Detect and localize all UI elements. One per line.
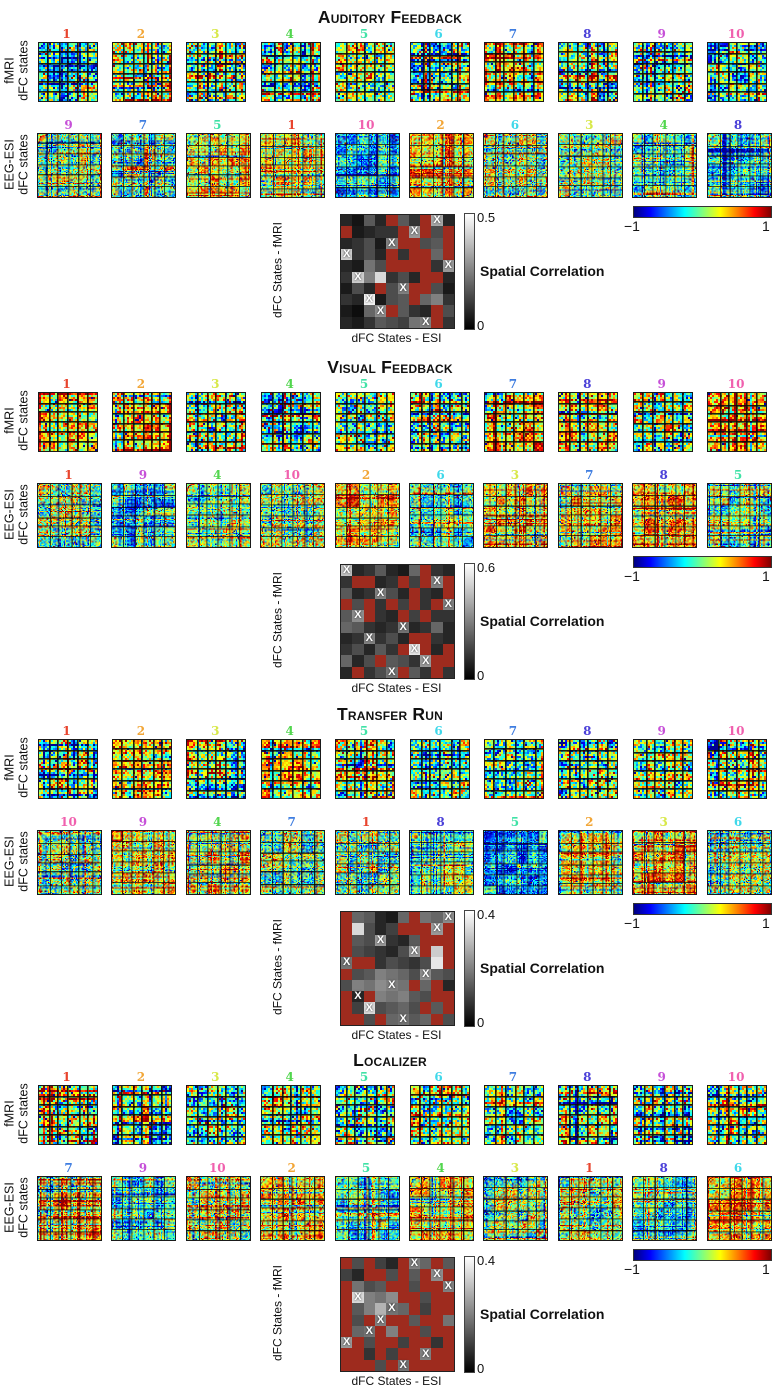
match-x-mark: X [366, 1326, 373, 1337]
correlation-cell [420, 565, 431, 576]
eeg-dfc-state-matrix [260, 1176, 325, 1241]
correlation-cell [431, 1360, 442, 1371]
fmri-dfc-state-matrix [38, 392, 98, 452]
correlation-cell [431, 655, 442, 666]
state-number-fmri: 7 [493, 1071, 533, 1083]
correlation-cell [420, 935, 431, 946]
correlation-cell [443, 1014, 454, 1025]
correlation-cell: X [375, 1315, 386, 1326]
fmri-dfc-state-matrix [633, 1085, 693, 1145]
correlation-cell [352, 588, 363, 599]
correlation-cell [409, 912, 420, 923]
correlation-cell [420, 980, 431, 991]
correlation-cell [386, 294, 397, 305]
match-x-mark: X [411, 226, 418, 237]
correlation-cell [375, 1002, 386, 1013]
correlation-cell [420, 272, 431, 283]
correlation-cell [398, 249, 409, 260]
fmri-dfc-state-matrix [261, 392, 321, 452]
correlation-cell [375, 1269, 386, 1280]
dfc-states-figure: Auditory Feedback12345678910fMRIdFC stat… [0, 0, 779, 1399]
correlation-cell [431, 1002, 442, 1013]
state-number-fmri: 1 [47, 1071, 87, 1083]
correlation-cell [364, 957, 375, 968]
jet-colorbar [633, 206, 772, 218]
correlation-cell [341, 633, 352, 644]
correlation-cell: X [364, 1326, 375, 1337]
state-number-fmri: 4 [270, 378, 310, 390]
correlation-cell [443, 980, 454, 991]
correlation-cell [409, 610, 420, 621]
state-number-eeg: 9 [123, 1162, 163, 1174]
correlation-ylabel: dFC States - fMRI [270, 1256, 284, 1369]
correlation-cell [443, 1337, 454, 1348]
fmri-dfc-state-matrix [186, 1085, 246, 1145]
state-number-fmri: 9 [642, 725, 682, 737]
correlation-cell [341, 1281, 352, 1292]
correlation-cell [375, 923, 386, 934]
correlation-cell [341, 1002, 352, 1013]
fmri-dfc-state-matrix [707, 1085, 767, 1145]
state-number-fmri: 3 [195, 28, 235, 40]
spatial-correlation-colorbar [464, 213, 475, 330]
correlation-cell [409, 272, 420, 283]
correlation-cell [409, 1281, 420, 1292]
correlation-cell [386, 599, 397, 610]
fmri-dfc-state-matrix [484, 1085, 544, 1145]
correlation-cell [364, 1303, 375, 1314]
correlation-cell [409, 1337, 420, 1348]
spatial-correlation-matrix: XXXXXXXXXX [340, 1257, 455, 1372]
correlation-cell [443, 1292, 454, 1303]
correlation-cell: X [375, 588, 386, 599]
correlation-cell [364, 238, 375, 249]
row-label-line2: dFC states [17, 1159, 31, 1255]
correlation-cell [352, 946, 363, 957]
correlation-cell [431, 610, 442, 621]
correlation-cell [420, 644, 431, 655]
spatial-correlation-colorbar [464, 1256, 475, 1373]
eeg-dfc-state-matrix [111, 1176, 176, 1241]
match-x-mark: X [343, 1337, 350, 1348]
correlation-cell [431, 1292, 442, 1303]
fmri-dfc-state-matrix [112, 42, 172, 102]
fmri-row-label: fMRIdFC states [4, 1066, 31, 1162]
correlation-cell [352, 622, 363, 633]
eeg-dfc-state-matrix [409, 483, 474, 548]
state-number-fmri: 10 [716, 378, 756, 390]
fmri-dfc-state-matrix [38, 42, 98, 102]
correlation-cell [341, 588, 352, 599]
correlation-cell [375, 283, 386, 294]
fmri-dfc-state-matrix [261, 42, 321, 102]
correlation-cell [352, 238, 363, 249]
correlation-cell [398, 1292, 409, 1303]
correlation-cell [352, 1315, 363, 1326]
correlation-cell [386, 655, 397, 666]
state-number-fmri: 6 [419, 28, 459, 40]
match-x-mark: X [366, 633, 373, 644]
state-number-fmri: 5 [344, 1071, 384, 1083]
correlation-cell [431, 991, 442, 1002]
correlation-cell [364, 1337, 375, 1348]
eeg-dfc-state-matrix [632, 1176, 697, 1241]
state-number-fmri: 9 [642, 28, 682, 40]
state-number-eeg: 6 [718, 816, 758, 828]
correlation-cell [341, 980, 352, 991]
correlation-cell [409, 599, 420, 610]
correlation-cell [364, 317, 375, 328]
correlation-cell [352, 655, 363, 666]
correlation-cell [431, 1315, 442, 1326]
correlation-cell [375, 1303, 386, 1314]
match-x-mark: X [445, 599, 452, 610]
correlation-cell [341, 610, 352, 621]
state-number-eeg: 3 [569, 119, 609, 131]
row-label-line1: fMRI [4, 720, 18, 816]
correlation-cell: X [375, 935, 386, 946]
correlation-cell: X [352, 610, 363, 621]
state-number-fmri: 9 [642, 1071, 682, 1083]
correlation-colorbar-max-label: 0.4 [477, 907, 495, 922]
match-x-mark: X [343, 957, 350, 968]
state-number-fmri: 4 [270, 28, 310, 40]
correlation-cell [409, 923, 420, 934]
correlation-cell: X [398, 1360, 409, 1371]
correlation-cell [420, 1002, 431, 1013]
state-number-fmri: 8 [567, 725, 607, 737]
state-number-eeg: 7 [272, 816, 312, 828]
match-x-mark: X [343, 565, 350, 576]
correlation-cell [420, 957, 431, 968]
correlation-cell: X [364, 633, 375, 644]
eeg-dfc-state-matrix [483, 830, 548, 895]
correlation-cell [341, 226, 352, 237]
jet-colorbar-min-label: −1 [624, 218, 640, 234]
correlation-cell [386, 226, 397, 237]
correlation-cell [375, 655, 386, 666]
match-x-mark: X [388, 980, 395, 991]
correlation-cell [398, 610, 409, 621]
correlation-cell [375, 1348, 386, 1359]
correlation-cell [420, 667, 431, 678]
state-number-fmri: 6 [419, 1071, 459, 1083]
correlation-cell [352, 260, 363, 271]
correlation-cell [443, 305, 454, 316]
fmri-dfc-state-matrix [558, 739, 618, 799]
correlation-cell [386, 991, 397, 1002]
correlation-cell [341, 305, 352, 316]
state-number-fmri: 5 [344, 28, 384, 40]
correlation-cell [443, 238, 454, 249]
state-number-fmri: 8 [567, 1071, 607, 1083]
correlation-cell [375, 565, 386, 576]
correlation-cell [375, 991, 386, 1002]
eeg-row-label: EEG-ESIdFC states [4, 813, 31, 909]
correlation-cell [341, 215, 352, 226]
fmri-dfc-state-matrix [186, 739, 246, 799]
correlation-cell [352, 1002, 363, 1013]
row-label-line2: dFC states [17, 466, 31, 562]
eeg-dfc-state-matrix [335, 1176, 400, 1241]
correlation-cell [443, 283, 454, 294]
state-number-fmri: 2 [121, 378, 161, 390]
jet-colorbar-max-label: 1 [762, 1261, 770, 1277]
correlation-cell [364, 272, 375, 283]
match-x-mark: X [354, 272, 361, 283]
correlation-cell [420, 215, 431, 226]
correlation-cell [431, 644, 442, 655]
fmri-row-label: fMRIdFC states [4, 720, 31, 816]
correlation-cell [352, 1348, 363, 1359]
correlation-cell [386, 946, 397, 957]
correlation-cell [431, 980, 442, 991]
correlation-cell [375, 610, 386, 621]
correlation-cell [420, 305, 431, 316]
eeg-dfc-state-matrix [483, 133, 548, 198]
correlation-ylabel: dFC States - fMRI [270, 213, 284, 326]
jet-colorbar [633, 903, 772, 915]
correlation-cell [443, 667, 454, 678]
row-label-line2: dFC states [17, 373, 31, 469]
correlation-cell [375, 1360, 386, 1371]
eeg-dfc-state-matrix [409, 830, 474, 895]
correlation-cell [420, 260, 431, 271]
section-title: Localizer [90, 1050, 690, 1071]
correlation-cell [398, 226, 409, 237]
correlation-cell [341, 1315, 352, 1326]
correlation-cell: X [398, 622, 409, 633]
correlation-cell [352, 1014, 363, 1025]
correlation-cell [431, 226, 442, 237]
section-title: Transfer Run [90, 704, 690, 725]
state-number-eeg: 10 [49, 816, 89, 828]
correlation-cell [420, 1281, 431, 1292]
correlation-cell [431, 272, 442, 283]
correlation-cell [398, 576, 409, 587]
eeg-dfc-state-matrix [632, 483, 697, 548]
correlation-cell [443, 935, 454, 946]
fmri-dfc-state-matrix [186, 42, 246, 102]
correlation-cell [341, 1360, 352, 1371]
correlation-cell [409, 655, 420, 666]
eeg-dfc-state-matrix [483, 483, 548, 548]
correlation-cell [420, 991, 431, 1002]
jet-colorbar-max-label: 1 [762, 915, 770, 931]
state-number-fmri: 6 [419, 378, 459, 390]
jet-colorbar-min-label: −1 [624, 568, 640, 584]
correlation-cell [398, 215, 409, 226]
fmri-dfc-state-matrix [112, 739, 172, 799]
correlation-cell [431, 1303, 442, 1314]
correlation-xlabel: dFC States - ESI [327, 1374, 467, 1388]
correlation-cell [386, 576, 397, 587]
correlation-cell [386, 1326, 397, 1337]
correlation-cell [364, 599, 375, 610]
fmri-dfc-state-matrix [112, 392, 172, 452]
correlation-cell [409, 588, 420, 599]
state-number-eeg: 4 [421, 1162, 461, 1174]
jet-colorbar-min-label: −1 [624, 1261, 640, 1277]
jet-colorbar [633, 1249, 772, 1261]
correlation-cell [364, 923, 375, 934]
correlation-cell: X [409, 946, 420, 957]
correlation-cell [409, 969, 420, 980]
eeg-dfc-state-matrix [409, 1176, 474, 1241]
jet-colorbar [633, 556, 772, 568]
correlation-cell [375, 576, 386, 587]
correlation-cell [386, 1348, 397, 1359]
correlation-cell [443, 226, 454, 237]
correlation-cell: X [431, 1269, 442, 1280]
correlation-cell [443, 294, 454, 305]
section-title: Auditory Feedback [90, 7, 690, 28]
state-number-fmri: 8 [567, 378, 607, 390]
correlation-cell [364, 935, 375, 946]
correlation-cell [341, 599, 352, 610]
correlation-cell [375, 215, 386, 226]
state-number-fmri: 5 [344, 725, 384, 737]
correlation-cell [431, 935, 442, 946]
row-label-line2: dFC states [17, 813, 31, 909]
correlation-cell [420, 1269, 431, 1280]
match-x-mark: X [377, 588, 384, 599]
correlation-colorbar-title: Spatial Correlation [480, 613, 604, 629]
eeg-dfc-state-matrix [707, 483, 772, 548]
fmri-row-label: fMRIdFC states [4, 23, 31, 119]
correlation-colorbar-min-label: 0 [477, 668, 484, 683]
match-x-mark: X [354, 991, 361, 1002]
correlation-colorbar-max-label: 0.4 [477, 1253, 495, 1268]
correlation-cell [364, 667, 375, 678]
correlation-cell [375, 226, 386, 237]
correlation-cell [364, 655, 375, 666]
row-label-line2: dFC states [17, 1066, 31, 1162]
correlation-cell [352, 667, 363, 678]
correlation-colorbar-title: Spatial Correlation [480, 263, 604, 279]
eeg-dfc-state-matrix [335, 483, 400, 548]
state-number-eeg: 2 [421, 119, 461, 131]
eeg-dfc-state-matrix [186, 1176, 251, 1241]
match-x-mark: X [433, 1269, 440, 1280]
fmri-dfc-state-matrix [707, 42, 767, 102]
correlation-cell [375, 969, 386, 980]
correlation-cell [375, 260, 386, 271]
correlation-cell [352, 912, 363, 923]
correlation-cell [409, 305, 420, 316]
correlation-cell [409, 1303, 420, 1314]
row-label-line1: EEG-ESI [4, 1159, 18, 1255]
correlation-cell [398, 238, 409, 249]
fmri-dfc-state-matrix [335, 739, 395, 799]
correlation-cell [386, 1281, 397, 1292]
eeg-dfc-state-matrix [483, 1176, 548, 1241]
correlation-cell [398, 991, 409, 1002]
correlation-cell [443, 946, 454, 957]
correlation-cell [386, 1258, 397, 1269]
correlation-cell [364, 969, 375, 980]
correlation-cell [409, 1360, 420, 1371]
correlation-cell [375, 1326, 386, 1337]
correlation-cell [409, 1326, 420, 1337]
state-number-eeg: 5 [346, 1162, 386, 1174]
correlation-cell [398, 305, 409, 316]
correlation-cell [431, 260, 442, 271]
correlation-cell [375, 272, 386, 283]
correlation-cell [352, 565, 363, 576]
match-x-mark: X [366, 294, 373, 305]
eeg-dfc-state-matrix [707, 133, 772, 198]
state-number-eeg: 1 [346, 816, 386, 828]
correlation-cell: X [431, 923, 442, 934]
correlation-cell [443, 969, 454, 980]
correlation-cell [398, 1002, 409, 1013]
eeg-dfc-state-matrix [186, 830, 251, 895]
match-x-mark: X [399, 1360, 406, 1371]
correlation-cell [386, 305, 397, 316]
correlation-cell [443, 610, 454, 621]
spatial-correlation-matrix: XXXXXXXXXX [340, 564, 455, 679]
correlation-cell [431, 1281, 442, 1292]
correlation-cell: X [398, 1014, 409, 1025]
fmri-dfc-state-matrix [261, 739, 321, 799]
state-number-eeg: 2 [346, 469, 386, 481]
state-number-eeg: 1 [272, 119, 312, 131]
correlation-cell: X [420, 317, 431, 328]
correlation-cell [352, 226, 363, 237]
correlation-cell [341, 1348, 352, 1359]
correlation-cell [431, 1326, 442, 1337]
correlation-cell: X [409, 1258, 420, 1269]
correlation-cell [420, 1014, 431, 1025]
correlation-cell [364, 249, 375, 260]
correlation-cell: X [341, 565, 352, 576]
correlation-cell [352, 249, 363, 260]
match-x-mark: X [388, 667, 395, 678]
correlation-cell: X [420, 969, 431, 980]
correlation-colorbar-title: Spatial Correlation [480, 960, 604, 976]
correlation-cell: X [352, 991, 363, 1002]
correlation-cell [364, 1292, 375, 1303]
correlation-cell [443, 1360, 454, 1371]
correlation-colorbar-max-label: 0.5 [477, 210, 495, 225]
correlation-cell [341, 935, 352, 946]
state-number-fmri: 4 [270, 725, 310, 737]
eeg-dfc-state-matrix [111, 133, 176, 198]
state-number-eeg: 8 [644, 1162, 684, 1174]
correlation-cell [386, 957, 397, 968]
correlation-cell [420, 238, 431, 249]
fmri-dfc-state-matrix [707, 392, 767, 452]
correlation-cell [352, 935, 363, 946]
section-title: Visual Feedback [90, 357, 690, 378]
state-number-eeg: 10 [346, 119, 386, 131]
correlation-cell [409, 317, 420, 328]
correlation-cell [364, 991, 375, 1002]
state-number-fmri: 3 [195, 725, 235, 737]
correlation-cell [420, 1258, 431, 1269]
correlation-cell [386, 317, 397, 328]
correlation-cell [398, 957, 409, 968]
correlation-cell [398, 980, 409, 991]
correlation-cell [364, 260, 375, 271]
match-x-mark: X [366, 1003, 373, 1014]
row-label-line2: dFC states [17, 720, 31, 816]
match-x-mark: X [411, 946, 418, 957]
correlation-cell [398, 565, 409, 576]
correlation-cell [386, 1360, 397, 1371]
row-label-line1: EEG-ESI [4, 466, 18, 562]
